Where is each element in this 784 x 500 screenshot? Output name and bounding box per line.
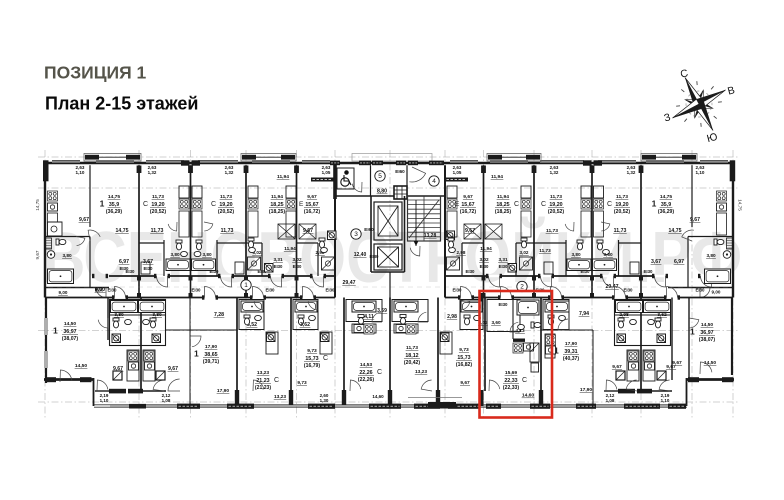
svg-text:(20,42): (20,42) (404, 360, 420, 366)
svg-text:(16,79): (16,79) (304, 363, 320, 369)
svg-text:9,00: 9,00 (59, 290, 68, 295)
svg-text:(20,52): (20,52) (150, 209, 166, 215)
svg-text:3: 3 (354, 231, 358, 238)
svg-text:С: С (541, 201, 546, 208)
svg-text:(39,71): (39,71) (203, 359, 219, 365)
svg-text:1: 1 (53, 326, 58, 336)
svg-text:3,80: 3,80 (706, 253, 716, 258)
svg-text:3,02: 3,02 (520, 250, 529, 255)
svg-text:ЕІ30: ЕІ30 (499, 264, 508, 269)
svg-text:1,10: 1,10 (661, 398, 670, 403)
svg-text:(22,33): (22,33) (503, 385, 519, 391)
svg-text:ЕІ30: ЕІ30 (695, 288, 705, 293)
svg-text:1,08: 1,08 (162, 398, 171, 403)
svg-text:11,94: 11,94 (480, 246, 492, 251)
svg-text:1: 1 (100, 199, 105, 209)
svg-text:С: С (323, 355, 328, 362)
svg-text:3,80: 3,80 (571, 252, 581, 257)
svg-text:11,73: 11,73 (539, 248, 551, 253)
svg-text:(36,29): (36,29) (106, 209, 122, 215)
svg-text:3,80: 3,80 (170, 252, 180, 257)
svg-text:1,32: 1,32 (225, 170, 234, 175)
svg-text:С: С (514, 201, 519, 208)
svg-text:1,05: 1,05 (322, 170, 331, 175)
svg-text:(16,72): (16,72) (460, 209, 476, 215)
svg-text:(20,52): (20,52) (614, 209, 630, 215)
svg-text:1,10: 1,10 (696, 170, 705, 175)
svg-text:(36,29): (36,29) (658, 209, 674, 215)
svg-text:Е: Е (299, 201, 304, 208)
svg-text:1,10: 1,10 (76, 170, 85, 175)
svg-text:1,08: 1,08 (606, 398, 615, 403)
svg-text:ЕІ30: ЕІ30 (293, 264, 302, 269)
svg-text:(38,07): (38,07) (699, 337, 715, 343)
svg-text:(40,37): (40,37) (563, 356, 579, 362)
svg-text:1,05: 1,05 (453, 170, 462, 175)
svg-text:ЕІ30: ЕІ30 (498, 302, 508, 307)
svg-text:3,80: 3,80 (62, 253, 72, 258)
svg-text:3,80: 3,80 (603, 252, 613, 257)
svg-text:1,32: 1,32 (627, 170, 636, 175)
svg-text:ЕІ60: ЕІ60 (364, 227, 374, 232)
svg-text:1: 1 (194, 349, 199, 359)
svg-text:План 2-15 этажей: План 2-15 этажей (45, 94, 198, 114)
svg-text:(38,07): (38,07) (62, 336, 78, 342)
svg-text:ЕІ30: ЕІ30 (107, 288, 117, 293)
svg-text:ЕІ30: ЕІ30 (325, 288, 335, 293)
svg-text:3,60: 3,60 (491, 320, 501, 325)
svg-text:3,02: 3,02 (292, 257, 302, 262)
svg-text:ЕІ30: ЕІ30 (119, 266, 129, 271)
svg-text:3,80: 3,80 (202, 252, 212, 257)
svg-text:2,98: 2,98 (457, 250, 466, 255)
svg-text:(22,26): (22,26) (358, 377, 374, 383)
svg-text:С: С (522, 377, 527, 384)
svg-text:9,00: 9,00 (712, 290, 721, 295)
svg-text:9,67: 9,67 (35, 250, 40, 259)
svg-text:С: С (143, 201, 148, 208)
svg-text:ЕІ30: ЕІ30 (143, 266, 153, 271)
svg-text:2: 2 (520, 284, 524, 291)
svg-text:С: С (607, 201, 612, 208)
svg-text:(16,72): (16,72) (304, 209, 320, 215)
svg-text:Е: Е (455, 201, 460, 208)
svg-text:(21,23): (21,23) (255, 385, 271, 391)
svg-text:ЕІ30: ЕІ30 (369, 254, 379, 259)
svg-text:ЕІ30: ЕІ30 (265, 288, 275, 293)
svg-text:4: 4 (432, 178, 436, 185)
svg-text:ПОЗИЦИЯ 1: ПОЗИЦИЯ 1 (44, 63, 147, 83)
svg-text:(20,52): (20,52) (218, 209, 234, 215)
svg-text:ЕІ30: ЕІ30 (480, 264, 489, 269)
svg-text:ЕІ30: ЕІ30 (191, 288, 201, 293)
svg-text:1,30: 1,30 (320, 398, 329, 403)
svg-text:С: С (274, 377, 279, 384)
svg-text:1,32: 1,32 (148, 170, 157, 175)
svg-text:(20,52): (20,52) (548, 209, 564, 215)
svg-text:ЕІ30: ЕІ30 (452, 288, 462, 293)
svg-text:14,75: 14,75 (738, 199, 743, 211)
svg-text:ВСЕНОВОСТРОЙКИ.РФ: ВСЕНОВОСТРОЙКИ.РФ (42, 216, 742, 298)
svg-text:3,02: 3,02 (479, 257, 489, 262)
svg-text:14,75: 14,75 (35, 199, 40, 211)
svg-text:ЕІ30: ЕІ30 (465, 269, 475, 274)
svg-text:С: С (211, 201, 216, 208)
svg-text:11,94: 11,94 (284, 246, 296, 251)
svg-text:(18,25): (18,25) (269, 209, 285, 215)
svg-text:С: С (377, 369, 382, 376)
svg-text:(18,25): (18,25) (495, 209, 511, 215)
svg-text:5: 5 (378, 173, 382, 180)
svg-text:14,60: 14,60 (372, 394, 384, 399)
svg-text:ЕІ30: ЕІ30 (274, 264, 283, 269)
svg-text:ЕІ30: ЕІ30 (623, 288, 633, 293)
svg-text:ЕІ30: ЕІ30 (643, 269, 653, 274)
svg-text:1,10: 1,10 (100, 398, 109, 403)
svg-text:ЕІ60: ЕІ60 (395, 169, 405, 174)
svg-text:3,31: 3,31 (273, 257, 283, 262)
svg-text:1: 1 (652, 199, 657, 209)
svg-text:ЕІ30: ЕІ30 (95, 288, 104, 293)
svg-text:(16,82): (16,82) (456, 362, 472, 368)
svg-text:1: 1 (244, 282, 248, 289)
svg-text:3,31: 3,31 (498, 257, 508, 262)
svg-text:1,32: 1,32 (550, 170, 559, 175)
